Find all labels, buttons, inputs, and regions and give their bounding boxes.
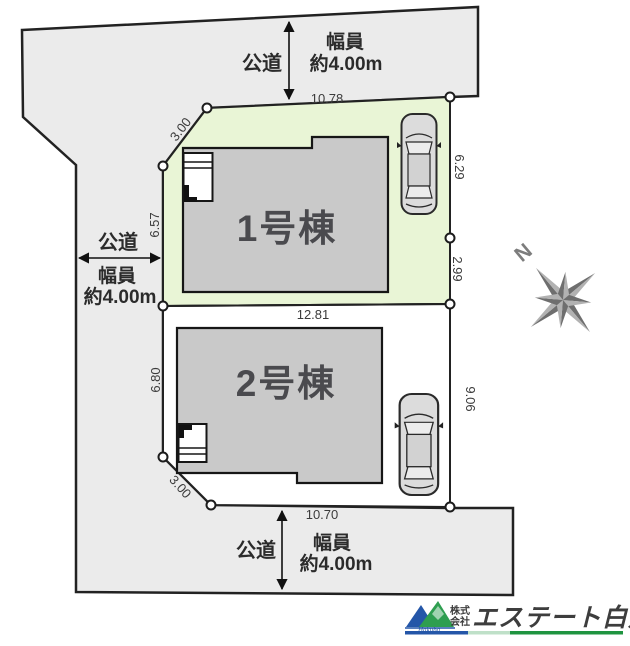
boundary-vertex [203,104,212,113]
boundary-vertex [446,300,455,309]
house-1-label: 1号棟 [237,208,338,249]
road-width-label-bottom-2: 約4.00m [300,552,373,575]
dim-lot1-bottom: 12.81 [297,307,330,322]
logo-underline [405,631,623,635]
dim-lot1-top: 10.78 [311,91,344,106]
road-label-bottom: 公道 [236,538,276,562]
road-label-top: 公道 [242,51,282,75]
company-logo: Hakuba 株式 会社 エステート白馬 [405,601,630,635]
compass-north-label: N [510,239,536,266]
site-plan-svg: 1号棟 2号棟 10.78 3.00 6.57 6.29 2.99 12.81 … [0,0,630,646]
dim-lot2-bottom: 10.70 [306,507,339,522]
boundary-vertex [207,501,216,510]
logo-company-prefix-2: 会社 [450,615,470,628]
road-width-label-bottom-1: 幅員 [313,531,351,554]
dim-lot1-left: 6.57 [147,212,162,237]
road-width-label-top-1: 幅員 [326,30,364,53]
boundary-vertex [159,162,168,171]
compass-rose: N [484,217,622,359]
boundary-vertex [446,503,455,512]
house-2: 2号棟 [177,328,382,483]
road-width-label-left-1: 幅員 [98,264,136,287]
dim-lot2-right: 9.06 [463,386,478,411]
boundary-vertex [159,302,168,311]
car-1-icon [397,114,441,214]
road-width-label-left-2: 約4.00m [84,285,157,308]
dim-lot2-left: 6.80 [148,367,163,392]
house-2-outline [177,328,382,483]
road-label-left: 公道 [98,230,138,254]
dim-lot1-right-upper: 6.29 [452,154,467,179]
boundary-vertex [446,93,455,102]
boundary-vertex [446,234,455,243]
boundary-vertex [159,453,168,462]
house-2-label: 2号棟 [236,363,337,404]
logo-company-name: エステート白馬 [472,604,630,632]
road-width-label-top-2: 約4.00m [310,52,383,75]
logo-company-prefix-1: 株式 [450,604,470,617]
car-2-icon [395,394,443,495]
house-1: 1号棟 [183,137,388,292]
logo-mountain-icon [405,601,455,628]
dim-lot1-right-lower: 2.99 [450,256,465,281]
